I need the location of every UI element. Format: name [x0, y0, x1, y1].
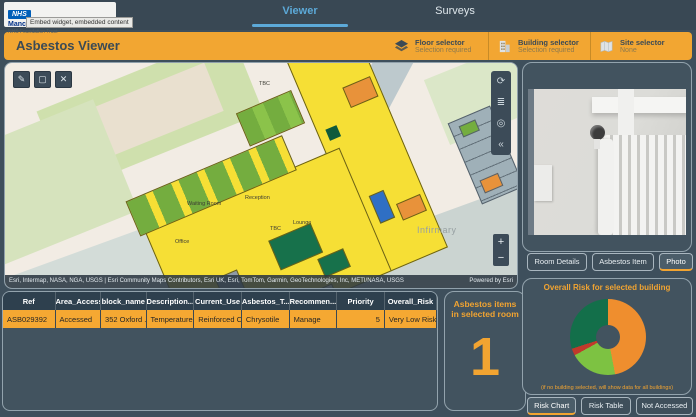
col-recommendation[interactable]: Recommen...: [289, 292, 337, 310]
room-label-tbc: TBC: [259, 81, 270, 87]
building-selector-value: Selection required: [518, 47, 579, 55]
room-label-reception: Reception: [245, 195, 270, 201]
col-priority[interactable]: Priority: [337, 292, 385, 310]
map-attribution: Esri, Intermap, NASA, NGA, USGS | Esri C…: [5, 275, 517, 288]
room-label-waiting-room: Waiting Room: [187, 201, 221, 207]
col-overall-risk[interactable]: Overall_Risk: [384, 292, 436, 310]
edit-icon[interactable]: ✎: [13, 71, 30, 88]
photo-panel: [522, 62, 692, 252]
room-label-tbc-2: TBC: [270, 226, 281, 232]
photo-wall-box: [534, 165, 552, 201]
asbestos-table: Ref Area_Access block_name Description..…: [3, 292, 437, 328]
photo-window-sill: [592, 97, 686, 113]
photo-radiator-fins: [604, 135, 686, 235]
refresh-icon[interactable]: ⟳: [491, 71, 511, 92]
col-area-access[interactable]: Area_Access: [55, 292, 101, 310]
map-toolbar: ✎ ▢ ✕: [13, 71, 72, 88]
close-icon[interactable]: ✕: [55, 71, 72, 88]
room-label-office: Office: [175, 239, 189, 245]
map-canvas[interactable]: TBC Waiting Room Reception Lounge TBC Of…: [4, 62, 518, 289]
map-label-infirmary: Infirmary: [417, 225, 457, 235]
photo-panel-tabs: Room Details Asbestos Item Photo: [527, 253, 693, 271]
tab-surveys[interactable]: Surveys: [410, 5, 500, 30]
site-map-icon: [599, 39, 614, 54]
cell-description[interactable]: Temperature...: [146, 310, 194, 328]
risk-chart-button[interactable]: Risk Chart: [527, 397, 576, 415]
building-selector-label: Building selector: [518, 38, 579, 47]
cell-asbestos-type[interactable]: Chrysotile: [241, 310, 289, 328]
cell-ref[interactable]: ASB029392: [3, 310, 55, 328]
floor-selector[interactable]: Floor selector Selection required: [386, 32, 488, 60]
asbestos-table-panel: Ref Area_Access block_name Description..…: [2, 291, 438, 411]
map-side-toolbar: ⟳ ≣ ◎ «: [491, 71, 511, 155]
risk-panel-tabs: Risk Chart Risk Table Not Accessed: [527, 397, 693, 415]
cell-overall-risk[interactable]: Very Low Risk: [384, 310, 436, 328]
layers-icon: [394, 39, 409, 54]
table-header-row: Ref Area_Access block_name Description..…: [3, 292, 437, 310]
photo-window-frame: [618, 89, 634, 135]
cell-current-use[interactable]: Reinforced C...: [194, 310, 242, 328]
cell-recommendation[interactable]: Manage: [289, 310, 337, 328]
map-zoom-control: + −: [493, 234, 509, 266]
cell-area-access[interactable]: Accessed: [55, 310, 101, 328]
cell-priority[interactable]: 5: [337, 310, 385, 328]
tab-viewer[interactable]: Viewer: [252, 5, 348, 30]
count-panel-title: Asbestos items in selected room: [445, 299, 525, 319]
site-selector[interactable]: Site selector None: [590, 32, 692, 60]
logo-sub-name: NHS Foundation Trust: [8, 29, 112, 35]
legend-icon[interactable]: ≣: [491, 92, 511, 113]
select-icon[interactable]: ▢: [34, 71, 51, 88]
tab-surveys-label: Surveys: [435, 5, 475, 17]
count-value: 1: [445, 319, 525, 395]
attribution-text: Esri, Intermap, NASA, NGA, USGS | Esri C…: [9, 275, 404, 288]
floorplan-green-rooms: [236, 90, 305, 147]
secondary-building-green-room: [459, 119, 480, 137]
asbestos-item-button[interactable]: Asbestos Item: [592, 253, 654, 271]
floor-selector-label: Floor selector: [415, 38, 471, 47]
room-photo: [528, 89, 686, 235]
site-selector-label: Site selector: [620, 38, 665, 47]
active-tab-underline: [252, 24, 348, 27]
photo-radiator-column: [598, 139, 613, 235]
secondary-building-orange-room: [479, 173, 503, 194]
asbestos-count-panel: Asbestos items in selected room 1: [444, 291, 526, 411]
risk-panel-note: (if no building selected, will show data…: [523, 385, 691, 391]
col-ref[interactable]: Ref: [3, 292, 55, 310]
zoom-out-button[interactable]: −: [493, 250, 509, 266]
table-row[interactable]: ASB029392 Accessed 352 Oxford ... Temper…: [3, 310, 437, 328]
top-bar: NHS Manchester University NHS Foundation…: [0, 0, 696, 30]
page-title: Asbestos Viewer: [16, 38, 120, 53]
col-asbestos-type[interactable]: Asbestos_T...: [241, 292, 289, 310]
site-selector-value: None: [620, 47, 665, 55]
risk-panel-title: Overall Risk for selected building: [523, 283, 691, 292]
locate-icon[interactable]: ◎: [491, 113, 511, 134]
col-current-use[interactable]: Current_Use: [194, 292, 242, 310]
photo-wall-edge: [528, 89, 534, 235]
room-details-button[interactable]: Room Details: [527, 253, 587, 271]
col-description[interactable]: Description...: [146, 292, 194, 310]
powered-by-esri: Powered by Esri: [469, 275, 513, 288]
risk-table-button[interactable]: Risk Table: [581, 397, 630, 415]
building-icon: [497, 39, 512, 54]
risk-donut[interactable]: [570, 299, 646, 375]
zoom-in-button[interactable]: +: [493, 234, 509, 250]
app-header: Asbestos Viewer Floor selector Selection…: [4, 32, 692, 60]
collapse-icon[interactable]: «: [491, 134, 511, 155]
selector-group: Floor selector Selection required Buildi…: [386, 32, 692, 60]
risk-panel: Overall Risk for selected building (if n…: [522, 278, 692, 395]
photo-valve-stem: [594, 139, 600, 149]
embed-widget-tooltip: Embed widget, embedded content: [26, 17, 133, 28]
room-label-lounge: Lounge: [293, 220, 311, 226]
not-accessed-button[interactable]: Not Accessed: [636, 397, 693, 415]
photo-button[interactable]: Photo: [659, 253, 693, 271]
tab-viewer-label: Viewer: [282, 5, 317, 17]
photo-radiator-valve: [590, 125, 605, 140]
cell-block-name[interactable]: 352 Oxford ...: [101, 310, 147, 328]
col-block-name[interactable]: block_name: [101, 292, 147, 310]
building-selector[interactable]: Building selector Selection required: [488, 32, 590, 60]
floor-selector-value: Selection required: [415, 47, 471, 55]
